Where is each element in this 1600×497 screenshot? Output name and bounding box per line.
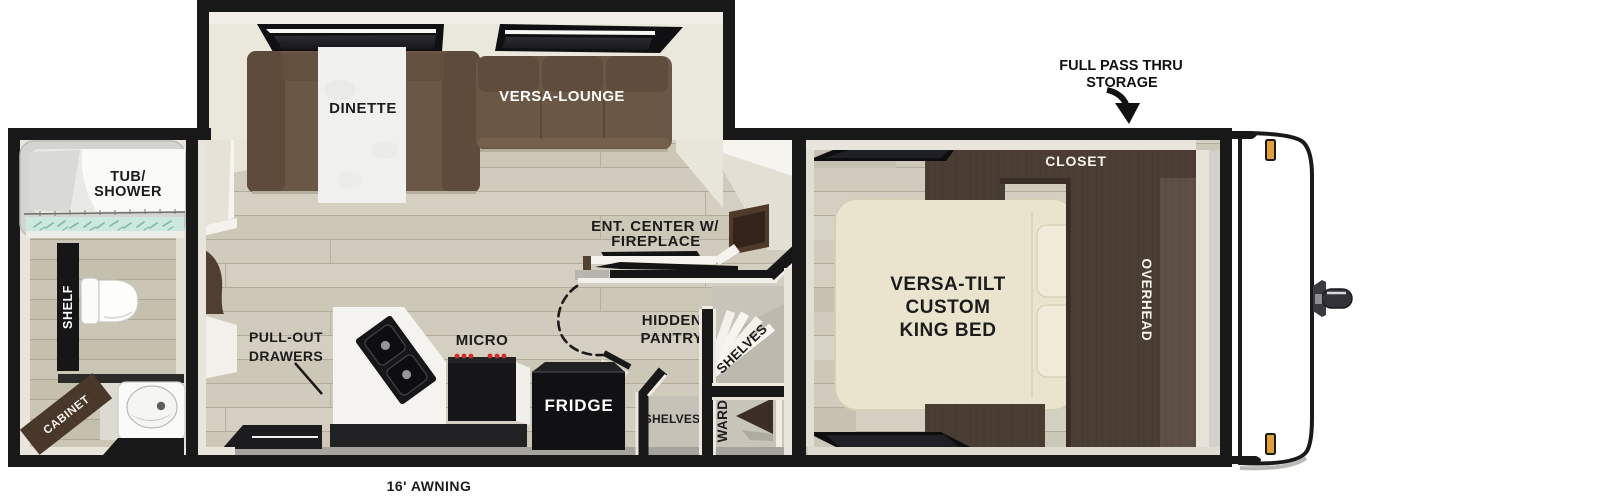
svg-text:FRIDGE: FRIDGE (544, 396, 613, 415)
svg-text:FIREPLACE: FIREPLACE (611, 233, 701, 250)
svg-text:PULL-OUT: PULL-OUT (249, 329, 323, 345)
svg-text:DRAWERS: DRAWERS (249, 348, 323, 364)
svg-text:DINETTE: DINETTE (329, 100, 397, 117)
svg-text:MICRO: MICRO (456, 332, 509, 349)
svg-text:CUSTOM: CUSTOM (906, 297, 991, 318)
svg-text:OVERHEAD: OVERHEAD (1139, 259, 1154, 342)
svg-text:VERSA-LOUNGE: VERSA-LOUNGE (499, 88, 625, 105)
svg-text:KING BED: KING BED (900, 320, 997, 341)
svg-text:PANTRY: PANTRY (641, 330, 704, 347)
svg-text:TUB/: TUB/ (110, 169, 145, 185)
svg-text:SHOWER: SHOWER (94, 184, 162, 200)
svg-text:16' AWNING: 16' AWNING (387, 478, 472, 492)
svg-text:FULL PASS THRU: FULL PASS THRU (1059, 58, 1183, 74)
svg-text:HIDDEN: HIDDEN (642, 312, 703, 329)
svg-text:SHELF: SHELF (61, 285, 75, 329)
svg-text:VERSA-TILT: VERSA-TILT (890, 274, 1005, 295)
svg-text:CLOSET: CLOSET (1045, 153, 1107, 169)
svg-text:STORAGE: STORAGE (1086, 75, 1158, 91)
svg-text:WARD: WARD (715, 400, 730, 443)
svg-text:SHELVES: SHELVES (644, 412, 701, 426)
